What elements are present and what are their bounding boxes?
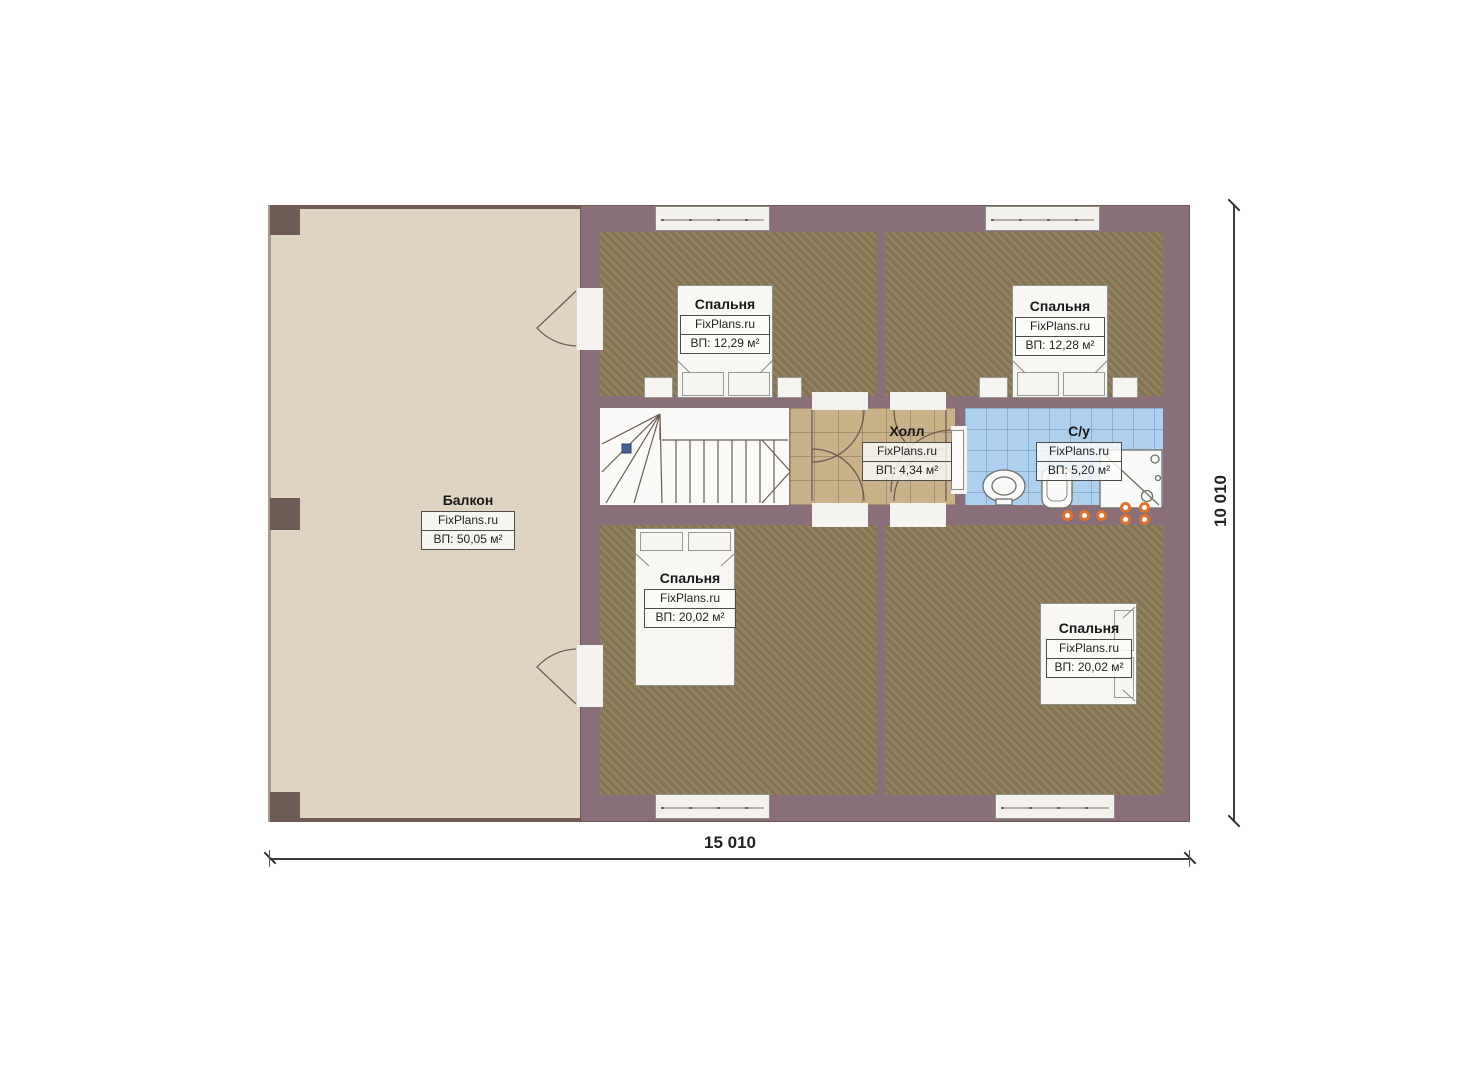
room-area: ВП: 20,02 м² xyxy=(1046,658,1132,678)
stair-hall-boundary xyxy=(789,408,790,505)
room-label-bedroom-top-right: Спальня FixPlans.ru ВП: 12,28 м² xyxy=(1015,298,1105,356)
room-area: ВП: 50,05 м² xyxy=(421,530,515,550)
window-top-left xyxy=(655,206,770,231)
room-name: Холл xyxy=(862,423,952,439)
dimension-height-label: 10 010 xyxy=(1211,441,1231,561)
watermark: FixPlans.ru xyxy=(1036,442,1122,462)
room-label-bedroom-bottom-left: Спальня FixPlans.ru ВП: 20,02 м² xyxy=(644,570,736,628)
window-bottom-right xyxy=(995,794,1115,819)
stairwell-floor xyxy=(600,408,790,505)
watermark: FixPlans.ru xyxy=(680,315,770,335)
room-name: Спальня xyxy=(680,296,770,312)
door-hall-to-bedroom-tl xyxy=(812,392,868,410)
nightstand xyxy=(1112,377,1138,398)
door-balcony-lower xyxy=(577,645,603,707)
bathroom-door-leaf xyxy=(951,430,964,490)
room-label-bedroom-top-left: Спальня FixPlans.ru ВП: 12,29 м² xyxy=(680,296,770,354)
heating-dot xyxy=(1139,514,1150,525)
room-area: ВП: 12,29 м² xyxy=(680,334,770,354)
door-balcony-upper xyxy=(577,288,603,350)
room-label-bathroom: С/у FixPlans.ru ВП: 5,20 м² xyxy=(1036,423,1122,481)
room-area: ВП: 12,28 м² xyxy=(1015,336,1105,356)
door-hall-to-bedroom-bl xyxy=(812,503,868,527)
watermark: FixPlans.ru xyxy=(1015,317,1105,337)
dimension-height-line xyxy=(1233,205,1235,822)
room-area: ВП: 5,20 м² xyxy=(1036,461,1122,481)
balcony-edge-bottom xyxy=(268,818,582,822)
room-area: ВП: 20,02 м² xyxy=(644,608,736,628)
dimension-width-line xyxy=(270,858,1190,860)
room-label-hall: Холл FixPlans.ru ВП: 4,34 м² xyxy=(862,423,952,481)
room-name: С/у xyxy=(1036,423,1122,439)
heating-dot xyxy=(1079,510,1090,521)
nightstand xyxy=(979,377,1008,398)
room-name: Спальня xyxy=(1046,620,1132,636)
balcony-column-middle xyxy=(270,498,300,530)
dimension-extension xyxy=(1189,850,1190,867)
dimension-extension xyxy=(269,850,270,867)
heating-dot xyxy=(1120,514,1131,525)
heating-dot xyxy=(1139,502,1150,513)
heating-dot xyxy=(1096,510,1107,521)
nightstand xyxy=(777,377,802,398)
room-name: Балкон xyxy=(421,492,515,508)
room-label-balcony: Балкон FixPlans.ru ВП: 50,05 м² xyxy=(421,492,515,550)
dimension-width-label: 15 010 xyxy=(270,833,1190,853)
heating-dot xyxy=(1120,502,1131,513)
room-name: Спальня xyxy=(1015,298,1105,314)
balcony-edge-top xyxy=(268,205,582,209)
watermark: FixPlans.ru xyxy=(421,511,515,531)
room-area: ВП: 4,34 м² xyxy=(862,461,952,481)
room-label-bedroom-bottom-right: Спальня FixPlans.ru ВП: 20,02 м² xyxy=(1046,620,1132,678)
watermark: FixPlans.ru xyxy=(644,589,736,609)
watermark: FixPlans.ru xyxy=(1046,639,1132,659)
heating-dot xyxy=(1062,510,1073,521)
balcony-column-top xyxy=(270,205,300,235)
window-bottom-left xyxy=(655,794,770,819)
watermark: FixPlans.ru xyxy=(862,442,952,462)
floor-plan-canvas: Балкон FixPlans.ru ВП: 50,05 м² Спальня … xyxy=(0,0,1474,1080)
window-top-right xyxy=(985,206,1100,231)
room-name: Спальня xyxy=(644,570,736,586)
balcony-column-bottom xyxy=(270,792,300,822)
door-hall-to-bedroom-br xyxy=(890,503,946,527)
nightstand xyxy=(644,377,673,398)
door-hall-to-bedroom-tr xyxy=(890,392,946,410)
